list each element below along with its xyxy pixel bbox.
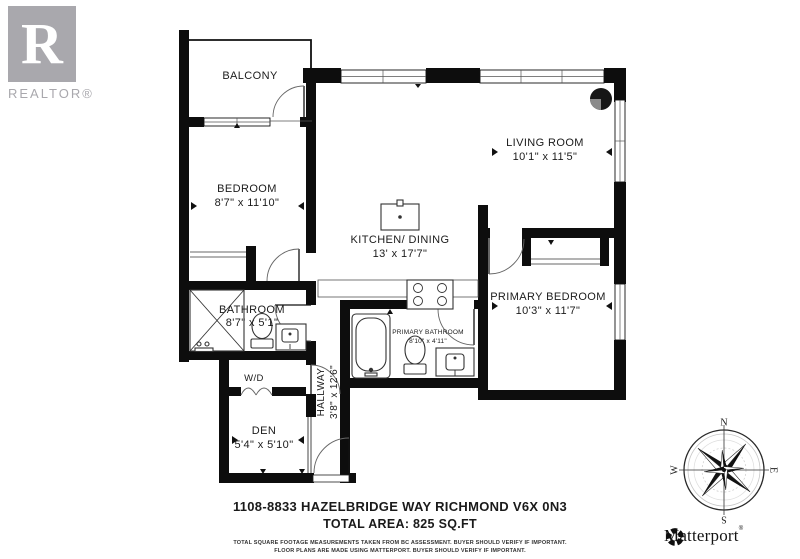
hallway-label-group: HALLWAY 3'8" x 12'6" (316, 365, 340, 419)
bedroom-door-arc (267, 249, 299, 281)
entry-threshold (313, 475, 349, 482)
hallway-dims: 3'8" x 12'6" (329, 365, 340, 419)
kitchen-dining-label: KITCHEN/ DINING (351, 234, 450, 246)
disclaimer-line-1: TOTAL SQUARE FOOTAGE MEASUREMENTS TAKEN … (0, 540, 800, 548)
den-label: DEN (252, 425, 276, 437)
balcony-wall (189, 40, 311, 68)
balcony-label: BALCONY (222, 70, 278, 82)
kitchen-dining-dims: 13' x 17'7" (373, 248, 428, 260)
primary-bathroom-label: PRIMARY BATHROOM (392, 329, 463, 336)
bathtub-icon (352, 314, 390, 378)
floorplan-drawing: BALCONY BEDROOM 8'7" x 11'10" LIVING ROO… (0, 0, 800, 559)
wd-bifold-door (241, 388, 272, 395)
total-area-line: TOTAL AREA: 825 SQ.FT (0, 517, 800, 531)
realtor-wordmark: REALTOR® (8, 86, 100, 101)
stove-icon (407, 280, 453, 309)
living-room-label: LIVING ROOM (506, 137, 584, 149)
primary-bedroom-dims: 10'3" x 11'7" (516, 305, 581, 317)
primary-bedroom-door-arc (489, 238, 524, 274)
bedroom-label: BEDROOM (217, 183, 277, 195)
sink-icon (276, 324, 306, 350)
den-sliding-door (308, 417, 311, 473)
bathroom-dims: 8'7" x 5'1" (226, 317, 279, 329)
address-line: 1108-8833 HAZELBRIDGE WAY RICHMOND V6X 0… (0, 499, 800, 514)
realtor-r-icon: R (8, 6, 76, 82)
disclaimer-line-2: FLOOR PLANS ARE MADE USING MATTERPORT. B… (0, 548, 800, 556)
living-room-dims: 10'1" x 11'5" (513, 151, 578, 163)
floorplan-page: BALCONY BEDROOM 8'7" x 11'10" LIVING ROO… (0, 0, 800, 559)
compass-w: W (669, 465, 680, 475)
disclaimer-text: TOTAL SQUARE FOOTAGE MEASUREMENTS TAKEN … (0, 540, 800, 555)
realtor-r-letter: R (21, 15, 63, 73)
column-icon (590, 88, 612, 110)
primary-bedroom-label: PRIMARY BEDROOM (490, 291, 606, 303)
kitchen-counter (318, 280, 478, 297)
wd-label: W/D (244, 373, 264, 384)
hallway-label: HALLWAY (316, 368, 327, 417)
realtor-logo: R REALTOR® (8, 6, 100, 101)
bathroom-label: BATHROOM (219, 304, 285, 316)
sink-icon (436, 348, 474, 376)
balcony-door-arc (273, 86, 304, 117)
compass-n: N (720, 417, 727, 428)
compass-e: E (768, 467, 779, 473)
den-dims: 5'4" x 5'10" (234, 439, 293, 451)
bedroom-dims: 8'7" x 11'10" (215, 197, 280, 209)
primary-bathroom-dims: 8'10" x 4'11" (409, 338, 447, 345)
kitchen-island (381, 200, 419, 230)
